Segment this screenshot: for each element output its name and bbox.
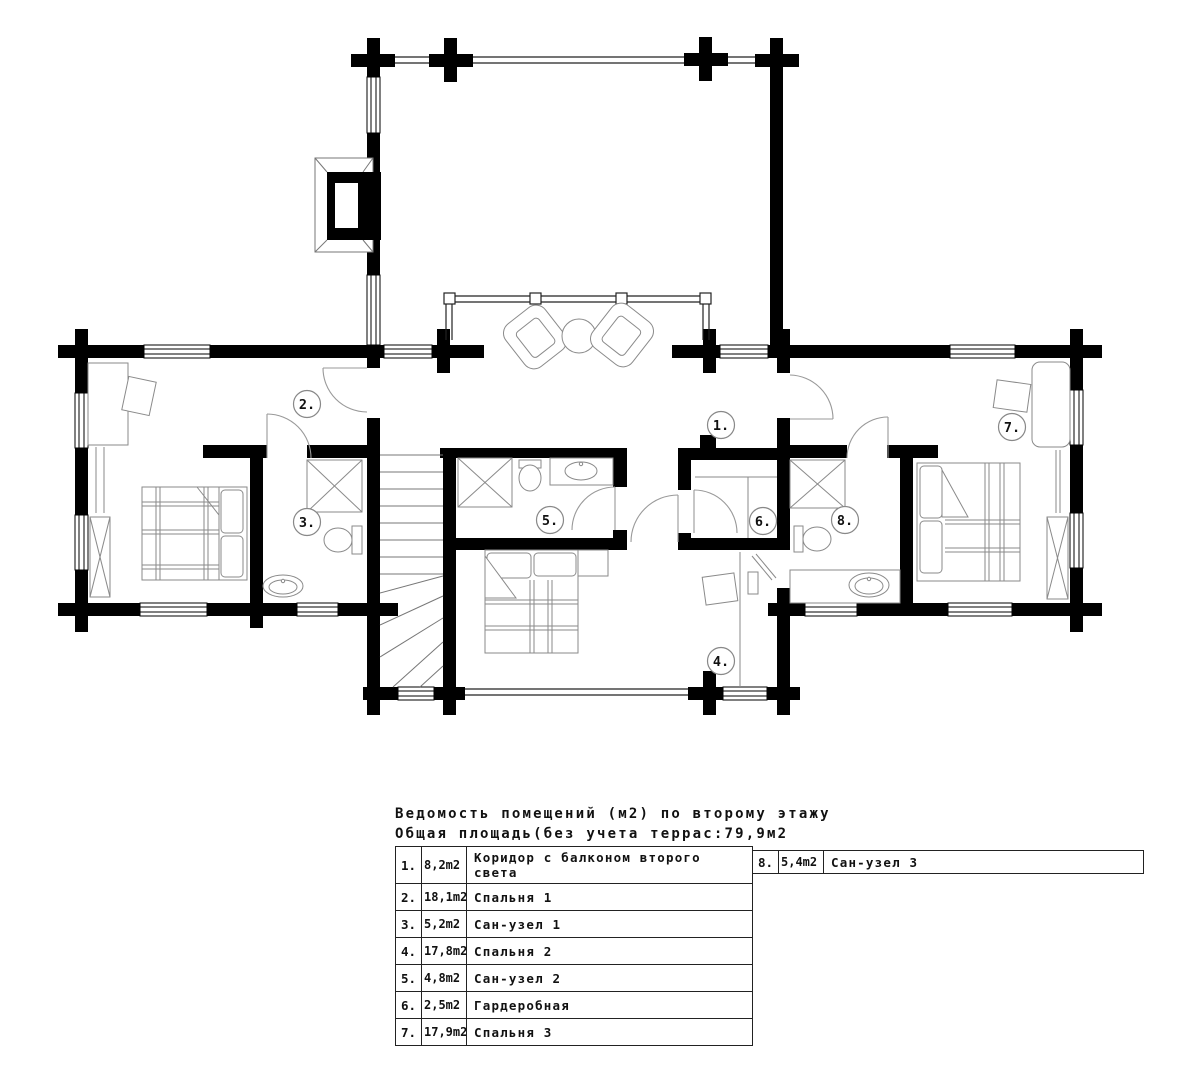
table-row: 1. 8,2m2 Коридор с балконом второго свет… [395, 846, 753, 884]
svg-text:5.: 5. [542, 513, 558, 529]
svg-text:7.: 7. [1004, 420, 1020, 436]
room-area-cell: 17,9m2 [422, 1019, 467, 1045]
room-name-cell: Гардеробная [467, 992, 752, 1018]
room-name-cell: Сан-узел 3 [824, 851, 1143, 873]
room-label-7: 7. [999, 414, 1026, 441]
sink-icon [550, 458, 613, 485]
table-row: 8. 5,4m2 Сан-узел 3 [752, 850, 1144, 874]
door-bedroom1 [323, 368, 367, 412]
staircase [380, 455, 443, 687]
nightstand-icon [578, 550, 608, 576]
room-number-cell: 8. [753, 851, 779, 873]
room-name-cell: Сан-узел 1 [467, 911, 752, 937]
armchair-icon [499, 300, 572, 373]
toilet-icon [794, 526, 831, 552]
shower-icon [458, 458, 512, 507]
svg-text:3.: 3. [299, 515, 315, 531]
room-label-2: 2. [294, 391, 321, 418]
table-row: 6. 2,5m2 Гардеробная [395, 991, 753, 1019]
room-number-cell: 4. [396, 938, 422, 964]
room-number-cell: 2. [396, 884, 422, 910]
room-area-cell: 4,8m2 [422, 965, 467, 991]
toilet-icon [519, 460, 541, 491]
svg-text:6.: 6. [755, 514, 771, 530]
room-area-cell: 5,4m2 [779, 851, 824, 873]
bed-icon [142, 487, 247, 580]
table-row: 7. 17,9m2 Спальня 3 [395, 1018, 753, 1046]
room-number-cell: 5. [396, 965, 422, 991]
bed-icon [917, 463, 1020, 581]
room-label-3: 3. [294, 509, 321, 536]
desk-icon [702, 554, 776, 605]
table-row: 3. 5,2m2 Сан-узел 1 [395, 910, 753, 938]
bed-icon [485, 550, 578, 653]
svg-text:8.: 8. [837, 513, 853, 529]
shower-icon [307, 460, 362, 512]
room-number-cell: 7. [396, 1019, 422, 1045]
door-bath1 [267, 414, 311, 458]
table-row: 5. 4,8m2 Сан-узел 2 [395, 964, 753, 992]
room-name-cell: Коридор с балконом второго света [467, 847, 752, 883]
room-label-4: 4. [708, 648, 735, 675]
door-corridor [790, 375, 833, 419]
sink-icon [790, 570, 900, 603]
room-area-cell: 2,5m2 [422, 992, 467, 1018]
schedule-table-right: 8. 5,4m2 Сан-узел 3 [752, 850, 1144, 874]
table-row: 4. 17,8m2 Спальня 2 [395, 937, 753, 965]
room-area-cell: 5,2m2 [422, 911, 467, 937]
room-label-6: 6. [750, 508, 777, 535]
closet-icon [90, 517, 110, 597]
walls-layer [58, 44, 1102, 700]
floor-plan-sheet: 1. 2. 3. 4. 5. 6. 7. 8. Ведомость помеще… [0, 0, 1200, 1078]
room-label-8: 8. [832, 507, 859, 534]
door-bedroom2 [631, 495, 678, 542]
room-name-cell: Спальня 3 [467, 1019, 752, 1045]
door-bath2 [572, 487, 615, 530]
armchair-icon [586, 298, 659, 371]
room-area-cell: 18,1m2 [422, 884, 467, 910]
room-labels: 1. 2. 3. 4. 5. 6. 7. 8. [294, 391, 1026, 675]
fireplace-icon [315, 158, 381, 252]
room-label-1: 1. [708, 412, 735, 439]
closet-icon [1047, 517, 1068, 599]
svg-text:2.: 2. [299, 397, 315, 413]
room-number-cell: 3. [396, 911, 422, 937]
floor-plan-drawing: 1. 2. 3. 4. 5. 6. 7. 8. [0, 0, 1200, 790]
room-name-cell: Спальня 1 [467, 884, 752, 910]
room-number-cell: 6. [396, 992, 422, 1018]
room-number-cell: 1. [396, 847, 422, 883]
schedule-subtitle: Общая площадь(без учета террас:79,9м2 [395, 826, 788, 842]
svg-text:1.: 1. [713, 418, 729, 434]
door-bath3 [847, 417, 888, 458]
room-area-cell: 8,2m2 [422, 847, 467, 883]
shower-icon [790, 460, 845, 508]
table-row: 2. 18,1m2 Спальня 1 [395, 883, 753, 911]
sink-icon [263, 575, 303, 597]
room-label-5: 5. [537, 507, 564, 534]
schedule-table-left: 1. 8,2m2 Коридор с балконом второго свет… [395, 846, 753, 1046]
room-area-cell: 17,8m2 [422, 938, 467, 964]
door-wardrobe [694, 490, 737, 533]
desk-icon [88, 363, 156, 445]
room-name-cell: Сан-узел 2 [467, 965, 752, 991]
toilet-icon [324, 526, 362, 554]
svg-text:4.: 4. [713, 654, 729, 670]
schedule-title: Ведомость помещений (м2) по второму этаж… [395, 806, 831, 822]
room-name-cell: Спальня 2 [467, 938, 752, 964]
